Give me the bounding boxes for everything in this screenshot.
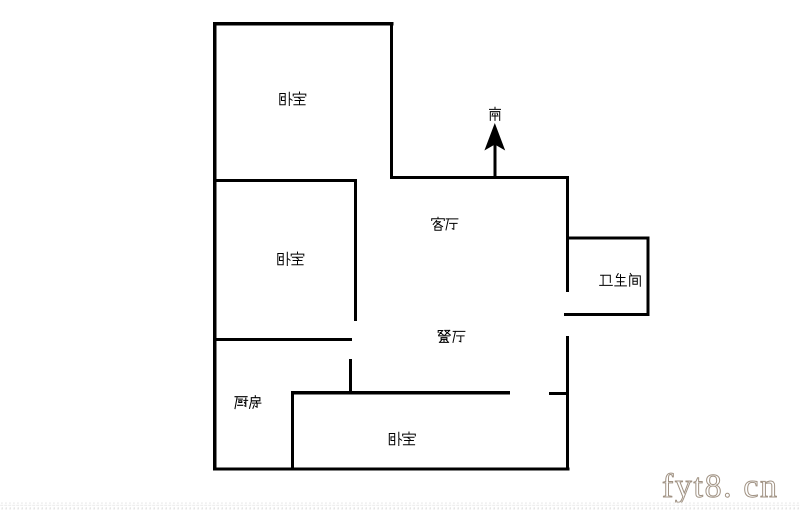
svg-text:fyt8. cn: fyt8. cn: [662, 468, 779, 505]
